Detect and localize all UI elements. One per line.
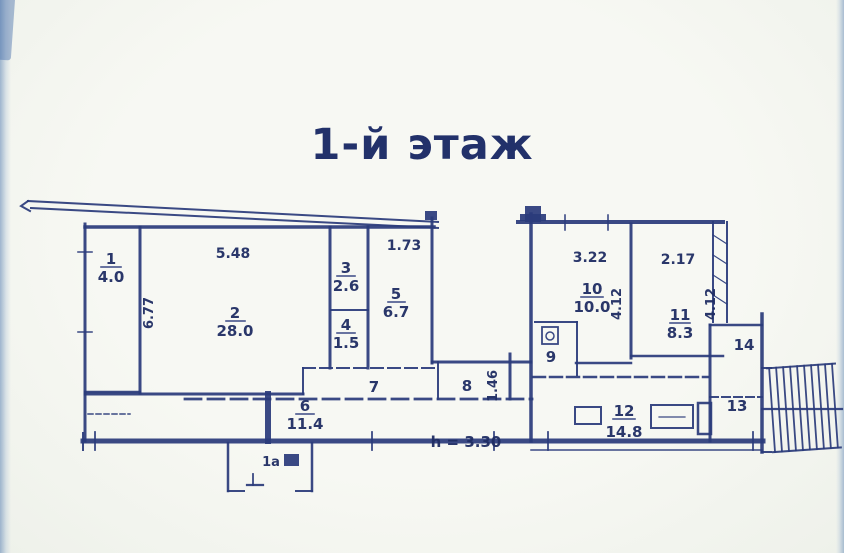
dim-room8-depth-label: 1.46 (486, 370, 501, 402)
vestibule-1a-label: 1а (262, 455, 280, 470)
room-13-number-label: 13 (727, 397, 748, 415)
ceiling-height-label: h = 3.30 (431, 433, 502, 451)
room-6-number-label: 6 (300, 397, 310, 415)
room-12-area-label: 14.8 (605, 423, 642, 441)
dim-room11-width-label: 2.17 (661, 252, 696, 268)
dim-room11-depth-label: 4.12 (704, 288, 719, 320)
room-4-number-label: 4 (341, 316, 351, 334)
dim-room2-width-label: 5.48 (216, 246, 251, 262)
room-12-fixtures (575, 403, 711, 434)
dim-room10-width-label: 3.22 (573, 250, 608, 266)
floor-plan-drawing: 1 4.0 2 28.0 3 2.6 4 1.5 5 6.7 6 11.4 7 … (0, 0, 844, 553)
room-8-number-label: 8 (462, 377, 472, 395)
room-7-number-label: 7 (369, 378, 379, 396)
room-1-number-label: 1 (106, 250, 116, 268)
room-1-area-label: 4.0 (98, 268, 125, 286)
room-3-number-label: 3 (341, 259, 351, 277)
room-6-area-label: 11.4 (286, 415, 323, 433)
room-3-area-label: 2.6 (333, 277, 360, 295)
room-11-area-label: 8.3 (667, 324, 694, 342)
room-10-number-label: 10 (582, 280, 603, 298)
room-11-number-label: 11 (670, 306, 691, 324)
room-5-number-label: 5 (391, 285, 401, 303)
bottom-exterior-wall (83, 433, 763, 450)
room-9-number-label: 9 (546, 348, 556, 366)
staircase (762, 364, 842, 453)
right-section-walls (518, 214, 762, 452)
room-2-area-label: 28.0 (216, 322, 253, 340)
room-12-number-label: 12 (614, 402, 635, 420)
room-5-area-label: 6.7 (383, 303, 410, 321)
scanned-floor-plan-page: 1-й этаж (0, 0, 844, 553)
room-14-number-label: 14 (734, 336, 755, 354)
dim-room10-depth-label: 4.12 (610, 288, 625, 320)
room-4-area-label: 1.5 (333, 334, 360, 352)
dim-room5-width-label: 1.73 (387, 238, 422, 254)
room-2-number-label: 2 (230, 304, 240, 322)
dim-room2-depth-label: 6.77 (142, 297, 157, 329)
room-10-area-label: 10.0 (573, 298, 610, 316)
courtyard-walls (425, 206, 546, 362)
